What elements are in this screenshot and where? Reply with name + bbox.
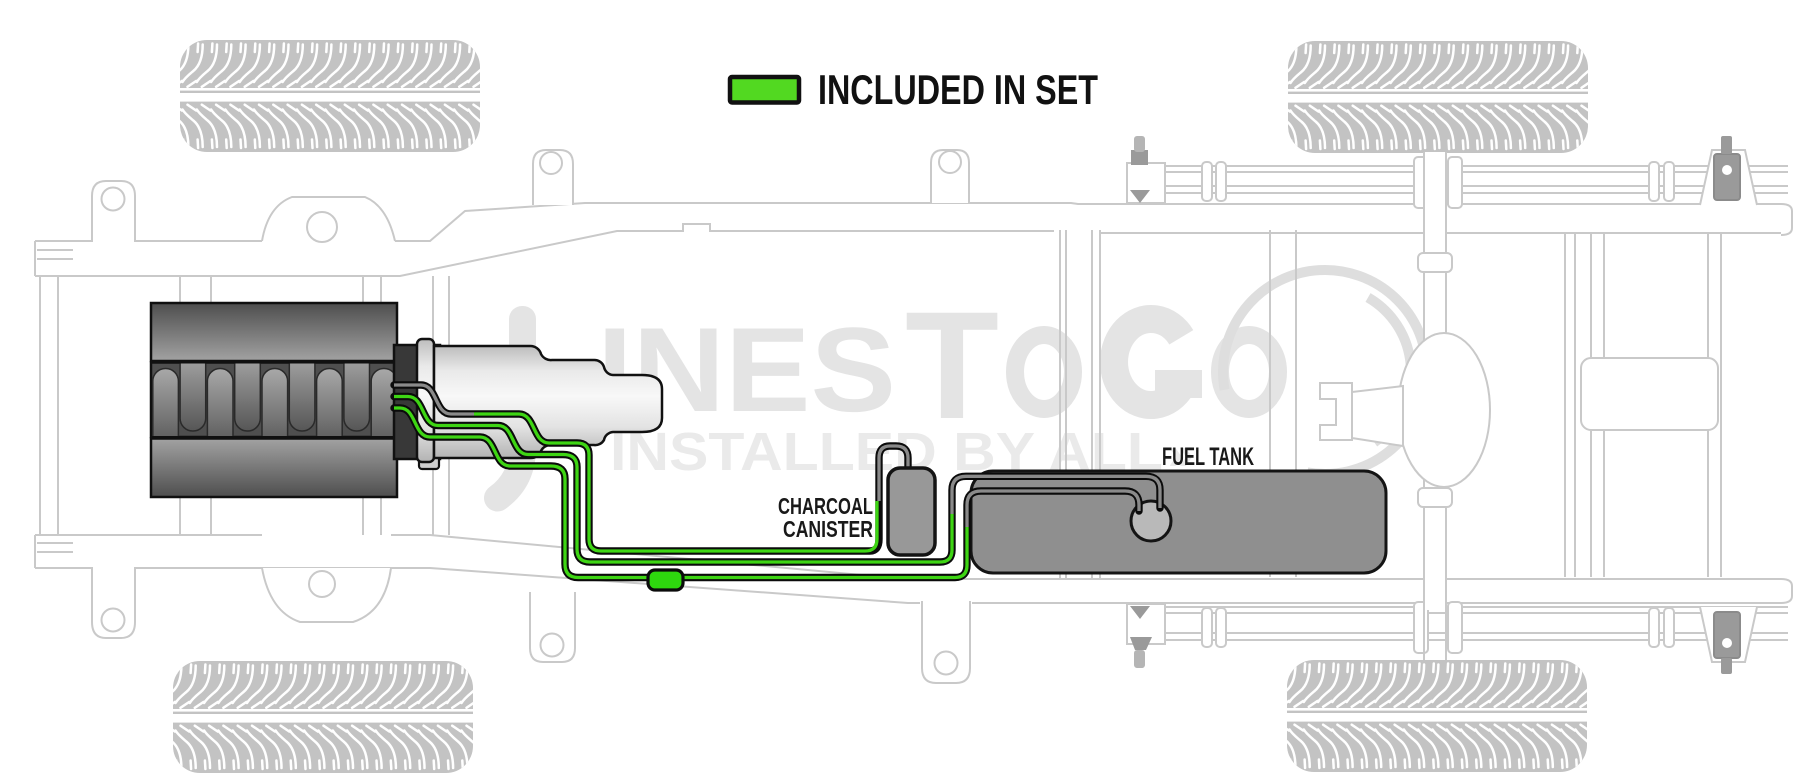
svg-text:FUEL TANK: FUEL TANK	[1162, 443, 1254, 471]
svg-text:CANISTER: CANISTER	[783, 516, 873, 542]
svg-text:INCLUDED IN SET: INCLUDED IN SET	[818, 66, 1098, 113]
